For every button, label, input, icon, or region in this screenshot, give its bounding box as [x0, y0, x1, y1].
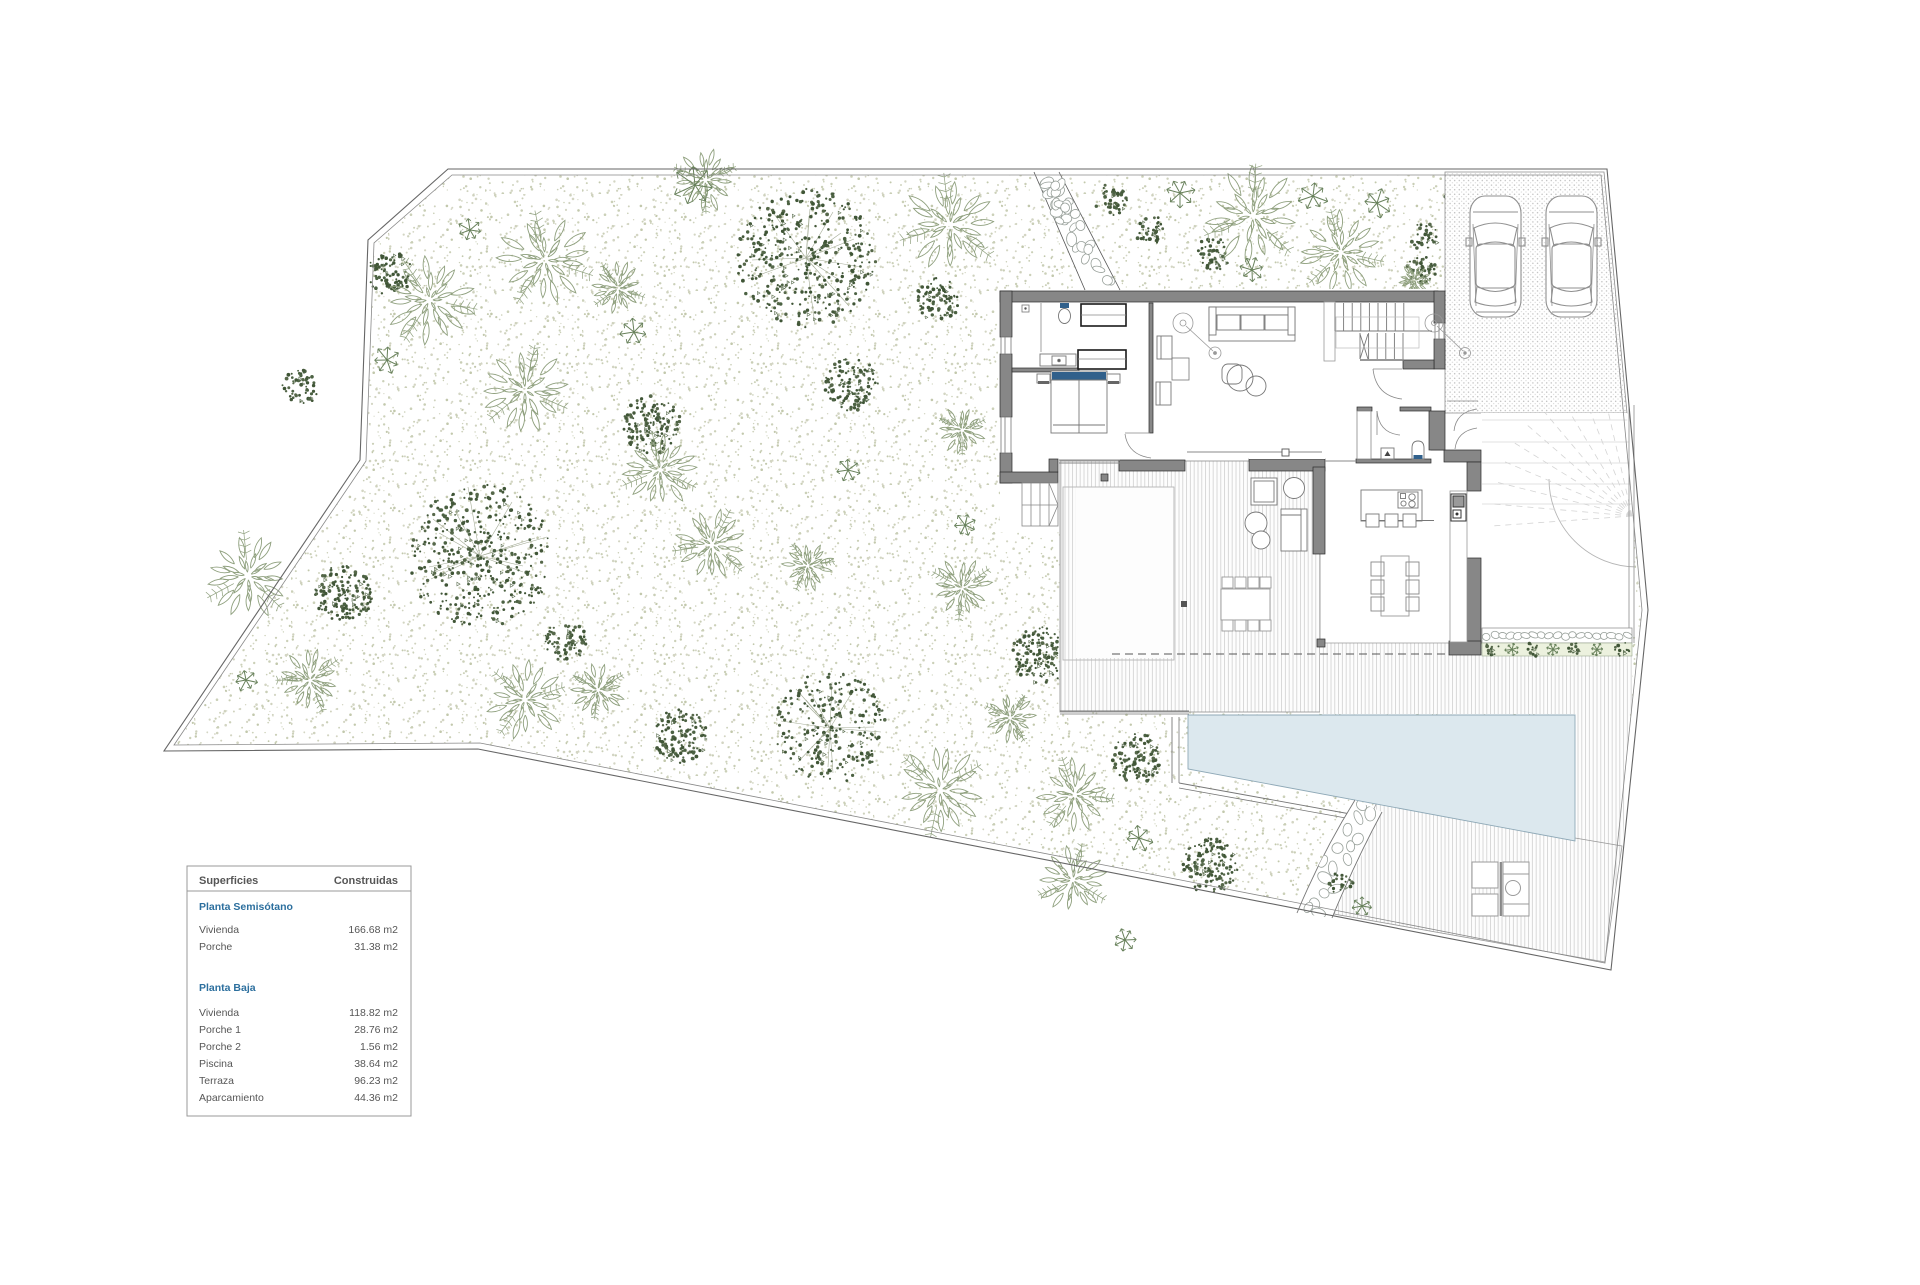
svg-text:118.82 m2: 118.82 m2: [349, 1007, 398, 1019]
svg-text:44.36 m2: 44.36 m2: [354, 1092, 398, 1104]
svg-text:166.68 m2: 166.68 m2: [348, 924, 398, 936]
svg-text:Planta Semisótano: Planta Semisótano: [199, 901, 293, 913]
svg-text:Porche 2: Porche 2: [199, 1041, 241, 1053]
svg-text:31.38 m2: 31.38 m2: [354, 941, 398, 953]
svg-text:Aparcamiento: Aparcamiento: [199, 1092, 264, 1104]
svg-text:38.64 m2: 38.64 m2: [354, 1058, 398, 1070]
svg-text:Piscina: Piscina: [199, 1058, 233, 1070]
svg-text:Construidas: Construidas: [334, 875, 398, 887]
svg-text:Planta Baja: Planta Baja: [199, 982, 256, 994]
svg-text:28.76 m2: 28.76 m2: [354, 1024, 398, 1036]
svg-text:Superficies: Superficies: [199, 875, 258, 887]
svg-text:Vivienda: Vivienda: [199, 1007, 239, 1019]
svg-text:Vivienda: Vivienda: [199, 924, 239, 936]
svg-text:Porche: Porche: [199, 941, 232, 953]
svg-text:1.56 m2: 1.56 m2: [360, 1041, 398, 1053]
svg-text:Terraza: Terraza: [199, 1075, 234, 1087]
svg-text:96.23 m2: 96.23 m2: [354, 1075, 398, 1087]
svg-text:Porche 1: Porche 1: [199, 1024, 241, 1036]
